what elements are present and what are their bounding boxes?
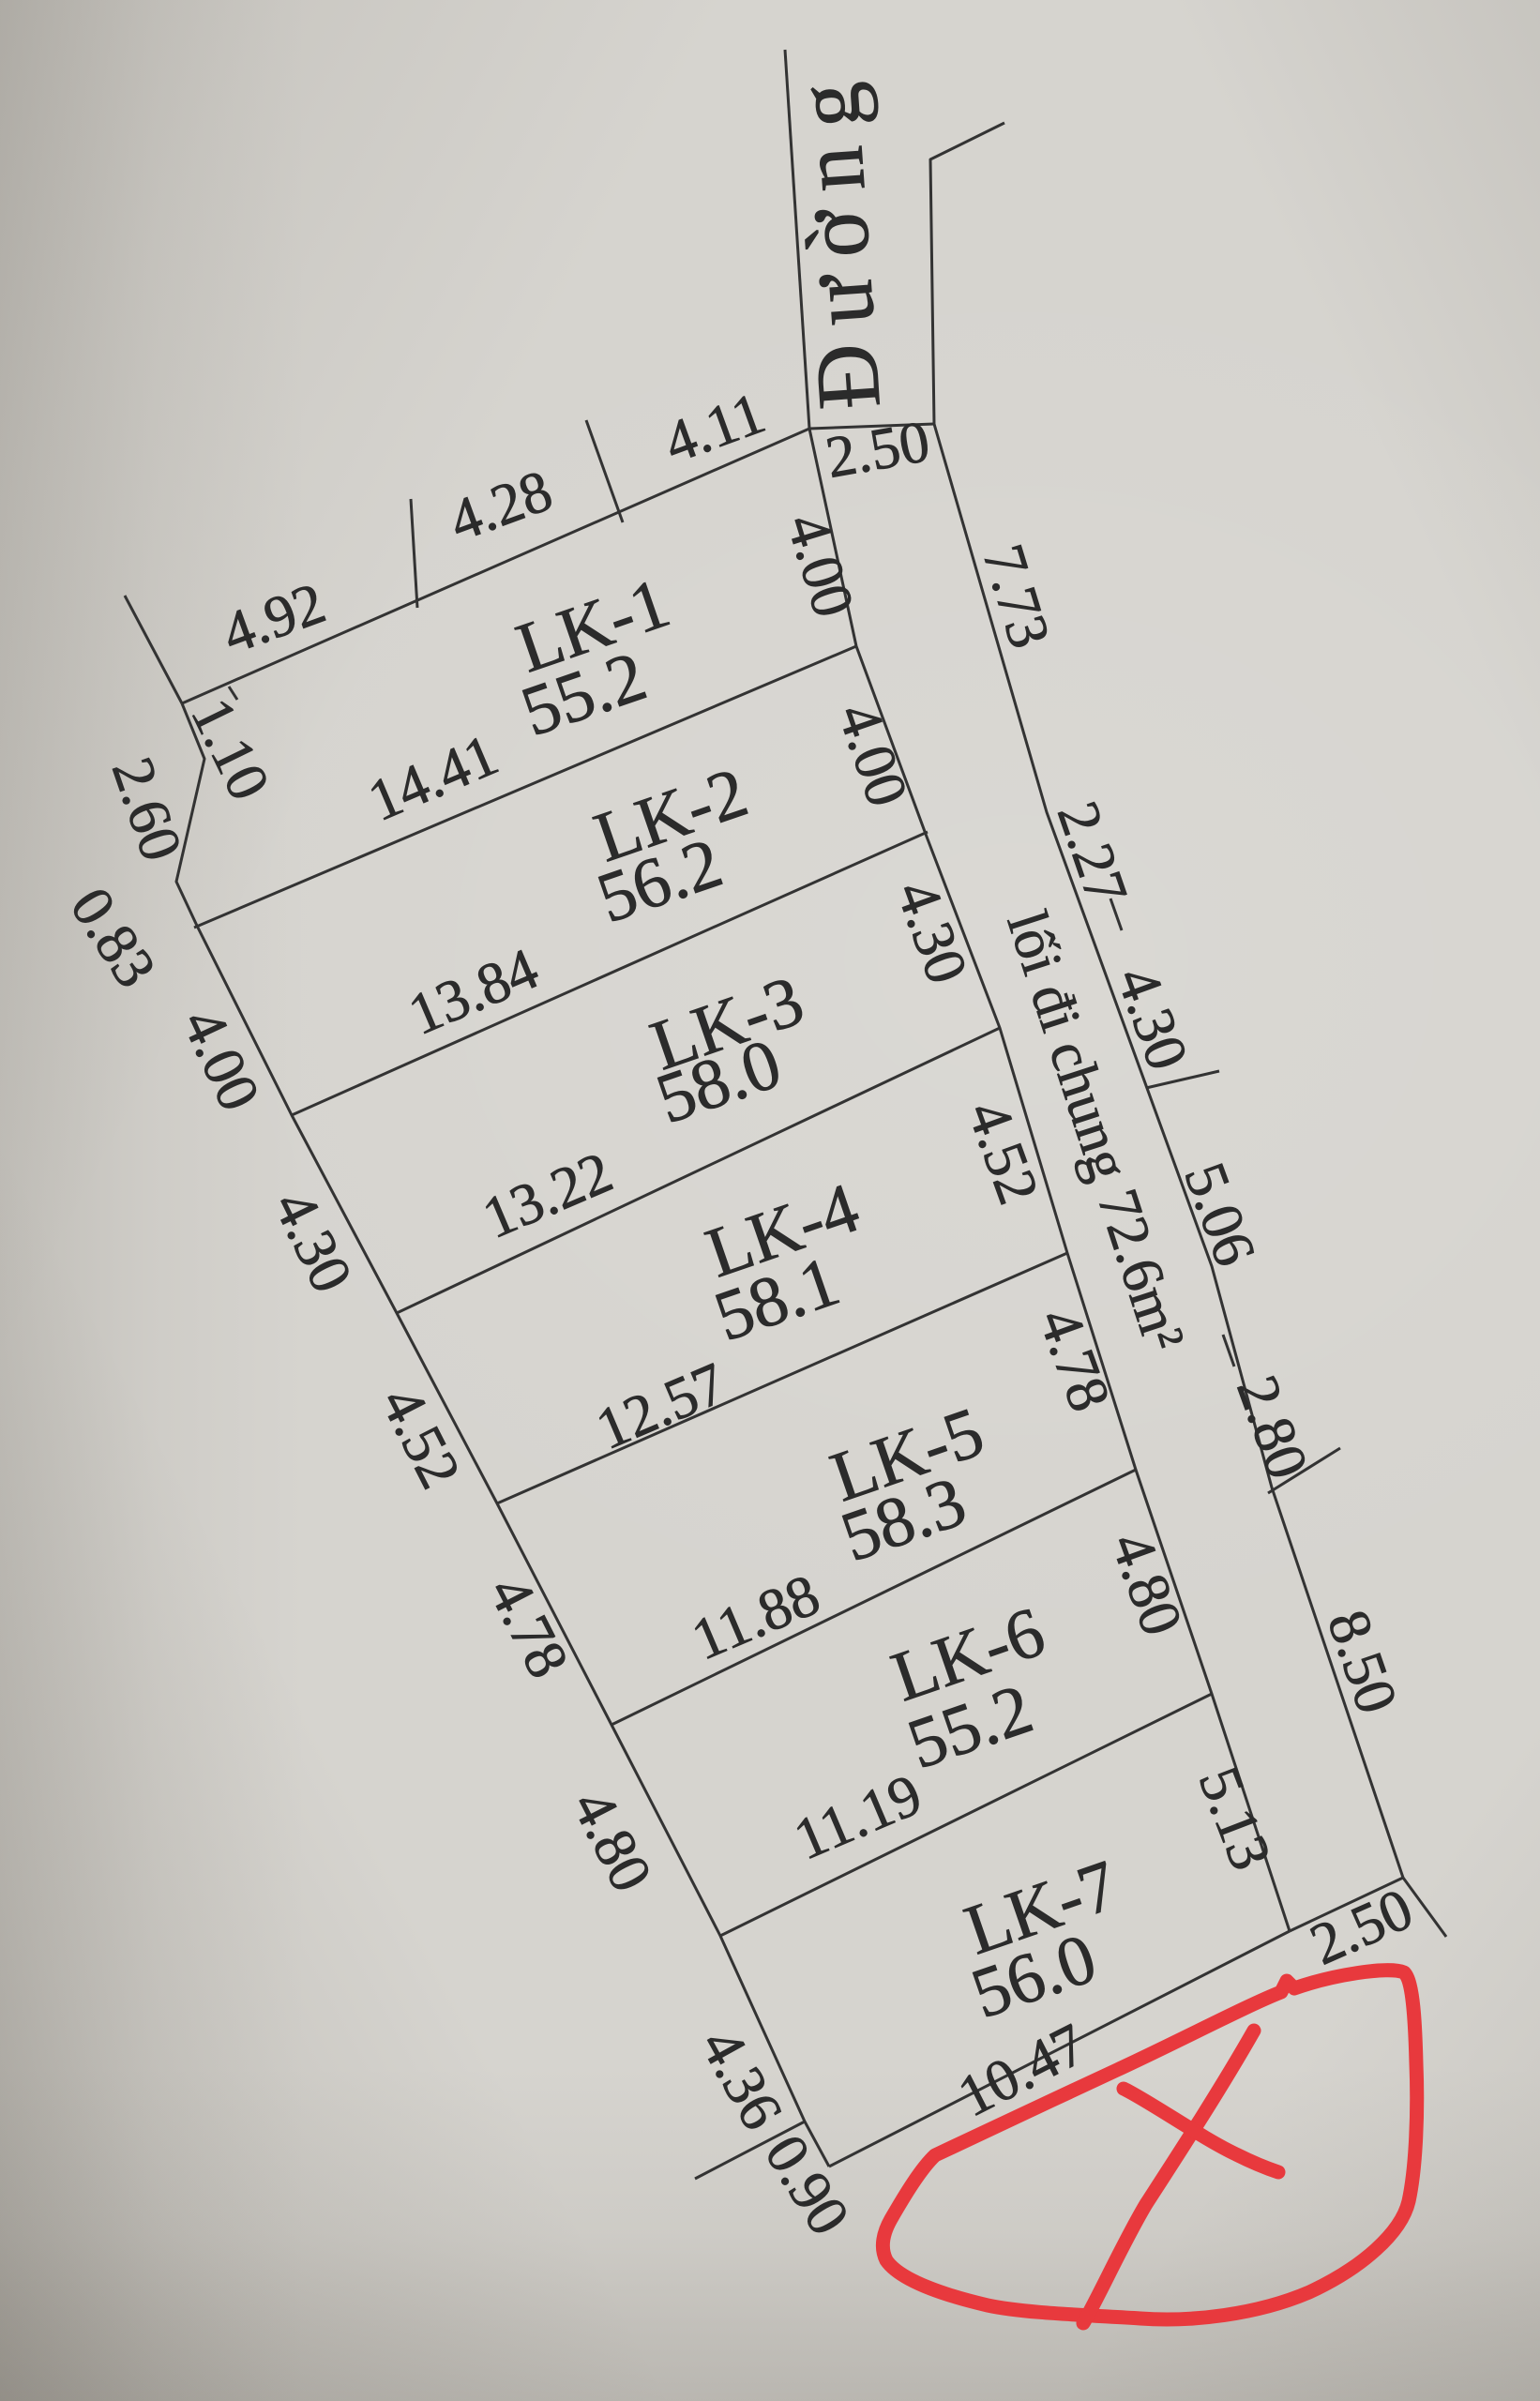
svg-text:2.80: 2.80	[1224, 1367, 1321, 1487]
svg-text:2.60: 2.60	[99, 749, 195, 868]
svg-text:4.30: 4.30	[261, 1181, 365, 1303]
svg-text:7.73: 7.73	[970, 537, 1063, 656]
svg-text:2.27: 2.27	[1045, 793, 1140, 913]
svg-text:4.92: 4.92	[214, 569, 334, 666]
svg-text:4.11: 4.11	[656, 380, 773, 476]
svg-text:11.19: 11.19	[785, 1761, 931, 1873]
svg-text:5.13: 5.13	[1186, 1759, 1285, 1879]
svg-text:4.52: 4.52	[955, 1093, 1051, 1213]
svg-text:4.36: 4.36	[688, 2017, 796, 2139]
svg-text:0.90: 0.90	[752, 2123, 863, 2246]
svg-text:2.50: 2.50	[1301, 1876, 1422, 1978]
svg-text:14.41: 14.41	[359, 721, 507, 834]
svg-text:0.83: 0.83	[57, 876, 169, 999]
svg-text:4.78: 4.78	[1026, 1300, 1123, 1420]
svg-text:4.00: 4.00	[774, 506, 867, 625]
svg-text:13.84: 13.84	[400, 935, 548, 1048]
svg-text:12.57: 12.57	[587, 1350, 735, 1462]
svg-text:8.50: 8.50	[1315, 1602, 1411, 1721]
svg-text:4.80: 4.80	[1098, 1524, 1195, 1644]
svg-text:4.00: 4.00	[170, 999, 273, 1121]
svg-text:4.30: 4.30	[883, 872, 980, 992]
svg-text:4.00: 4.00	[825, 695, 921, 814]
svg-text:4.52: 4.52	[369, 1377, 474, 1499]
svg-text:4.28: 4.28	[441, 457, 561, 553]
svg-text:1.10: 1.10	[178, 688, 282, 810]
svg-text:5.06: 5.06	[1171, 1155, 1268, 1275]
svg-text:13.22: 13.22	[474, 1139, 622, 1251]
svg-text:2.50: 2.50	[821, 408, 934, 491]
svg-text:Đường: Đường	[775, 61, 898, 413]
svg-text:4.30: 4.30	[1104, 959, 1200, 1079]
svg-text:4.78: 4.78	[476, 1566, 581, 1688]
